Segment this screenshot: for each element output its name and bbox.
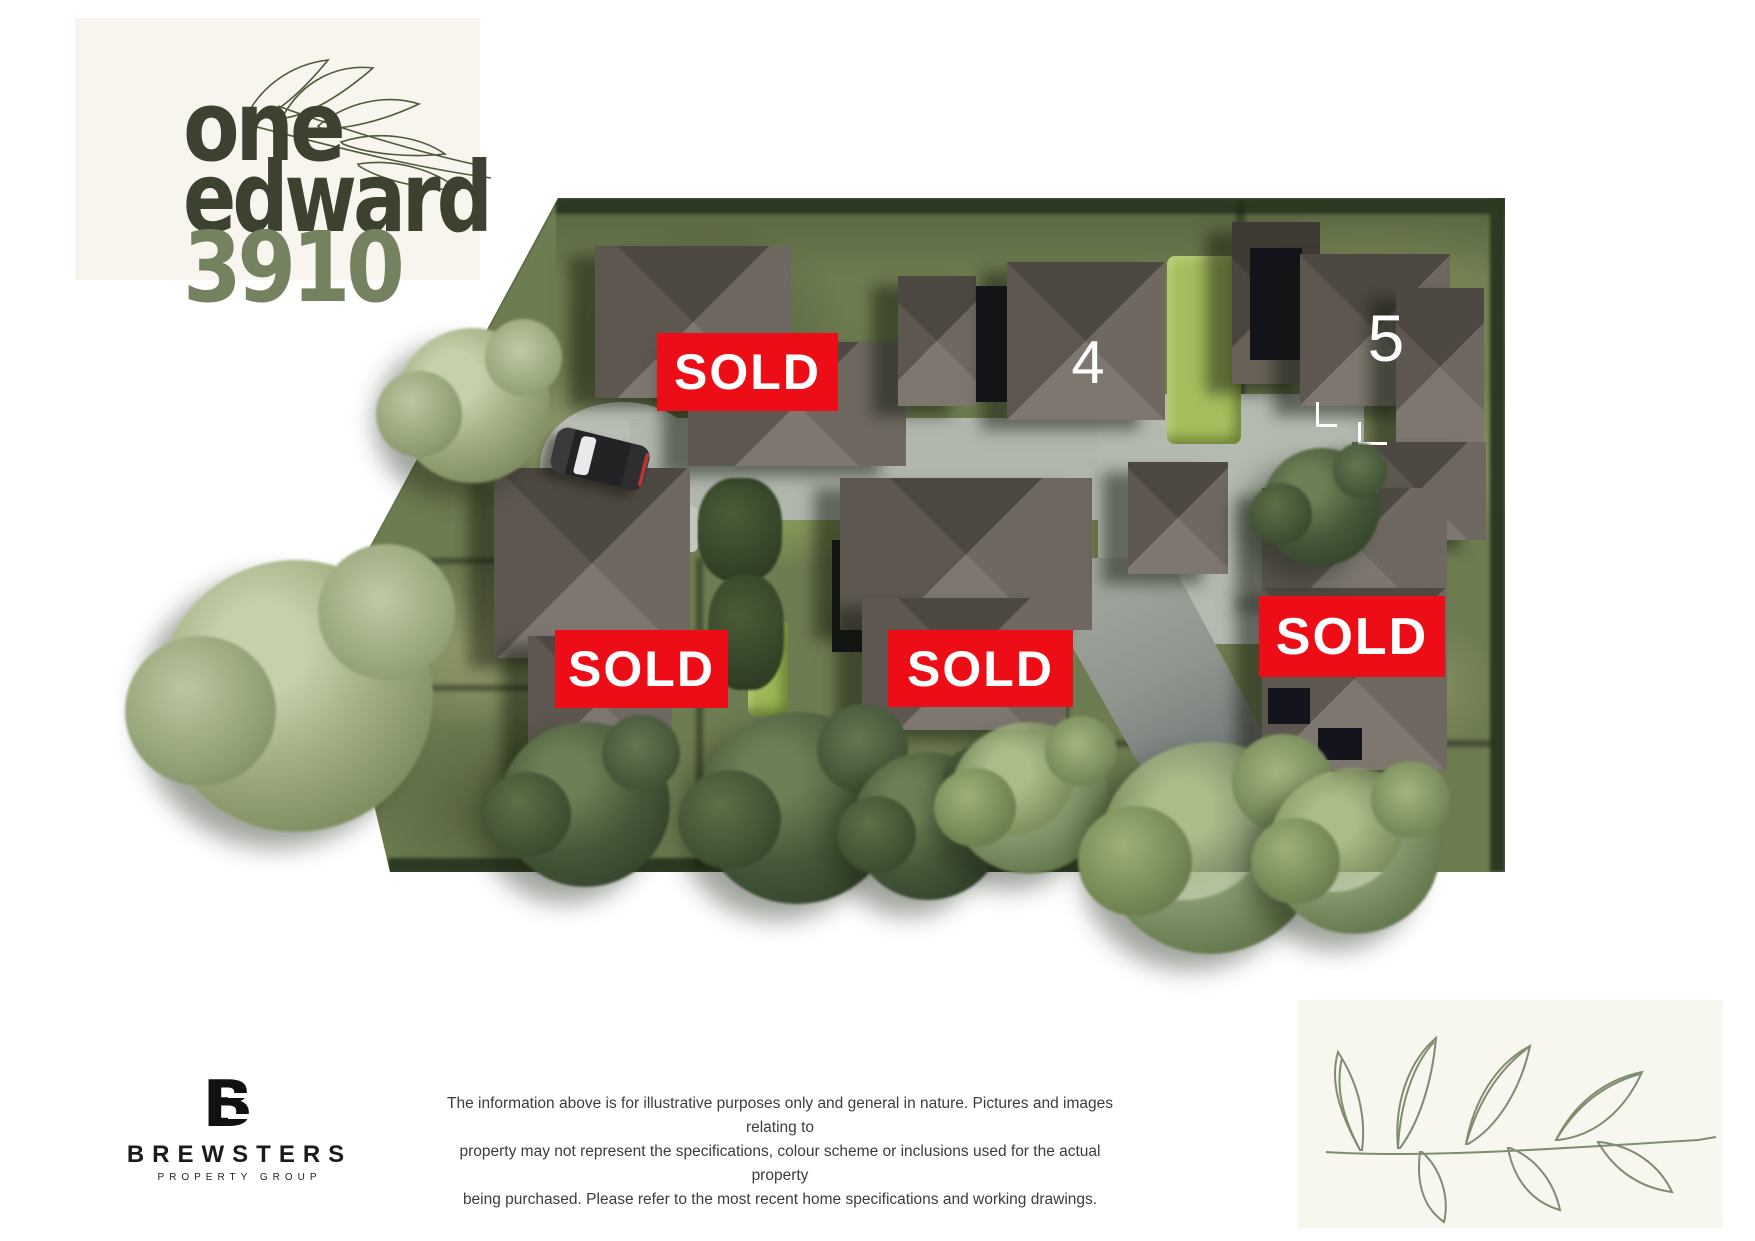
survey-mark (1358, 422, 1387, 445)
lot-number-5: 5 (1352, 300, 1420, 378)
courtyard-shadow (1268, 688, 1310, 724)
lot-number-4: 4 (1056, 328, 1120, 398)
brochure-page: one edward 3910 (0, 0, 1755, 1241)
house4-garage-roof (1128, 462, 1228, 574)
sold-badge-lot1: SOLD (657, 333, 838, 411)
tree (1268, 768, 1440, 934)
sold-badge-lot3: SOLD (888, 630, 1073, 707)
lot4-garage-roof (898, 276, 976, 406)
tree (1262, 448, 1380, 566)
sold-badge-lot6: SOLD (1259, 596, 1445, 677)
disclaimer-line1: The information above is for illustrativ… (447, 1095, 1113, 1136)
tree (395, 328, 550, 483)
survey-mark (1316, 402, 1337, 427)
sold-badge-lot2: SOLD (555, 630, 728, 708)
garden-shrub (698, 478, 782, 582)
monogram-slit (228, 1093, 260, 1098)
disclaimer-line3: being purchased. Please refer to the mos… (463, 1191, 1097, 1208)
tree (500, 722, 670, 887)
brand-word-3910: 3910 (183, 219, 400, 316)
brewsters-tagline: PROPERTY GROUP (117, 1172, 362, 1183)
boundary-hedge-right (1490, 198, 1505, 872)
garden-hedge (1167, 256, 1241, 444)
disclaimer-line2: property may not represent the specifica… (460, 1143, 1101, 1184)
brewsters-monogram: B (188, 1074, 268, 1138)
monogram-letter: B (202, 1068, 253, 1142)
courtyard-shadow (1250, 248, 1302, 360)
monogram-slit (228, 1114, 260, 1119)
brewsters-name: BREWSTERS (117, 1141, 362, 1169)
brand-panel: one edward 3910 (75, 18, 480, 280)
olive-branch-art (1298, 1000, 1723, 1228)
tree (158, 560, 433, 832)
car-windshield (573, 435, 598, 475)
boundary-hedge-top (556, 198, 1506, 214)
disclaimer-text: The information above is for illustrativ… (430, 1092, 1130, 1212)
